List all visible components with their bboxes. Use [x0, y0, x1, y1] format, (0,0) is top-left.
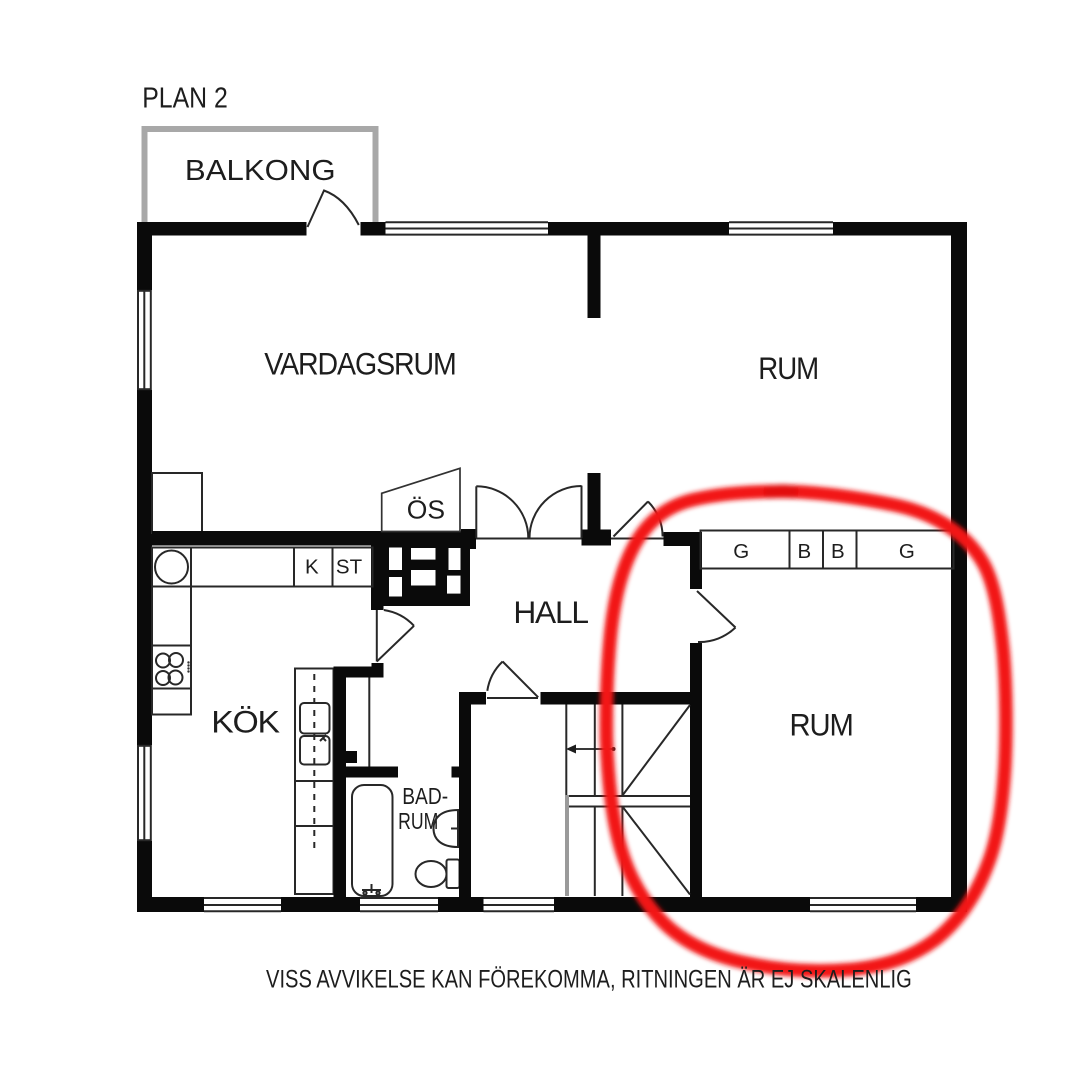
- svg-text:K: K: [305, 556, 319, 579]
- svg-text:VARDAGSRUM: VARDAGSRUM: [264, 346, 456, 382]
- svg-text:HALL: HALL: [513, 594, 588, 630]
- svg-text:RUM: RUM: [398, 808, 438, 834]
- svg-text:B: B: [831, 540, 845, 563]
- svg-text:B: B: [797, 540, 811, 563]
- svg-text:VISS AVVIKELSE KAN FÖREKOMMA,: VISS AVVIKELSE KAN FÖREKOMMA, RITNINGEN …: [266, 966, 912, 994]
- svg-text:RUM: RUM: [790, 707, 853, 743]
- svg-text:KÖK: KÖK: [211, 704, 280, 740]
- svg-text:ÖS: ÖS: [407, 496, 445, 524]
- svg-text:BAD-: BAD-: [402, 783, 448, 809]
- svg-text:G: G: [733, 540, 749, 563]
- svg-text:G: G: [899, 540, 915, 563]
- svg-text:ST: ST: [336, 556, 363, 579]
- svg-text:RUM: RUM: [758, 350, 818, 386]
- svg-text:PLAN 2: PLAN 2: [142, 83, 228, 115]
- svg-text:BALKONG: BALKONG: [185, 155, 336, 187]
